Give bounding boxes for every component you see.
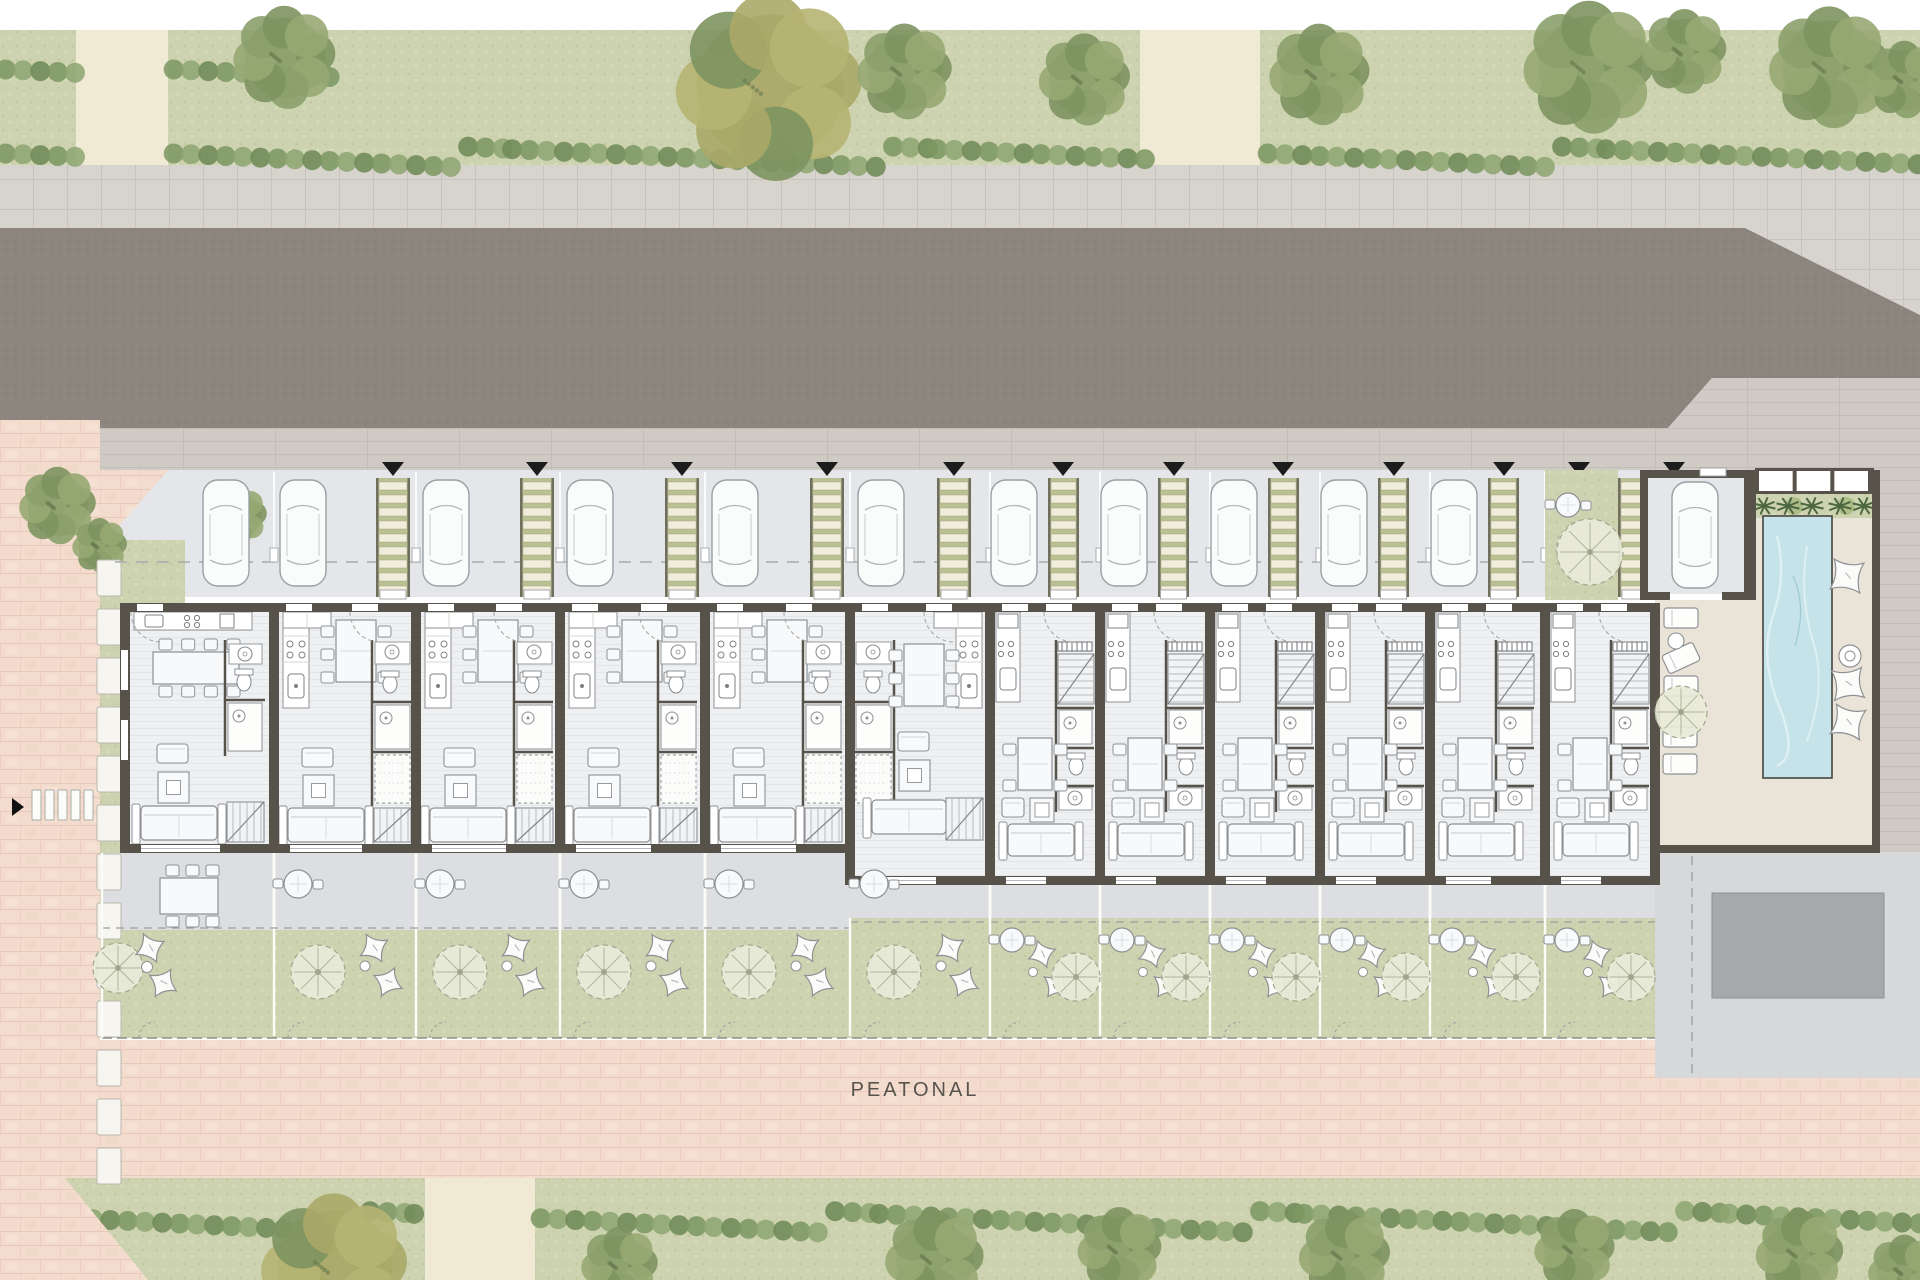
stepping-stone xyxy=(97,560,121,596)
east-sidewalk xyxy=(1880,378,1920,852)
stepping-stone xyxy=(97,707,121,743)
stepping-stone xyxy=(97,1099,121,1135)
tree xyxy=(1039,33,1130,125)
stepping-stone xyxy=(97,1050,121,1086)
stepping-stone xyxy=(97,756,121,792)
crosswalk-slat xyxy=(84,790,93,820)
entry-walkway xyxy=(810,478,844,597)
south-paths xyxy=(425,1178,535,1280)
ramp xyxy=(1712,893,1884,998)
north-sidewalk xyxy=(0,165,1920,228)
unit-7 xyxy=(995,612,1095,876)
garden-tree xyxy=(1272,953,1320,1001)
garden-tree xyxy=(722,945,776,999)
unit-1 xyxy=(130,612,269,844)
sun-lounger xyxy=(1664,608,1698,628)
tree xyxy=(233,6,335,109)
lounger-kite xyxy=(1832,668,1865,701)
entry-walkway xyxy=(1158,478,1189,597)
garden-tree xyxy=(1382,953,1430,1001)
crosswalk-slat xyxy=(58,790,67,820)
car xyxy=(203,480,249,586)
ring-table xyxy=(1839,645,1861,667)
garden-tree xyxy=(1655,686,1707,738)
garden-tree xyxy=(1162,953,1210,1001)
lounger-kite xyxy=(1830,559,1864,593)
garden-tree xyxy=(867,945,921,999)
car xyxy=(423,480,469,586)
carport xyxy=(1640,468,1752,600)
unit-11 xyxy=(1435,612,1540,876)
street-label: PEATONAL xyxy=(851,1079,980,1101)
tree xyxy=(1643,9,1727,94)
garden-tree xyxy=(1492,953,1540,1001)
unit-12 xyxy=(1550,612,1650,876)
unit-9 xyxy=(1215,612,1315,876)
car xyxy=(712,480,758,586)
stepping-stone xyxy=(97,658,121,694)
unit-6 xyxy=(855,612,985,876)
car xyxy=(1431,480,1477,586)
stepping-stone xyxy=(97,1001,121,1037)
tree xyxy=(1269,24,1369,125)
unit-4 xyxy=(565,612,700,846)
stepping-stone xyxy=(97,854,121,890)
garden-tree xyxy=(291,945,345,999)
garden-tree xyxy=(433,945,487,999)
garden-tree xyxy=(1557,519,1623,585)
tree xyxy=(1769,6,1889,128)
entry-walkway xyxy=(1268,478,1299,597)
entry-walkway xyxy=(937,478,971,597)
unit-10 xyxy=(1325,612,1425,876)
stepping-stone xyxy=(97,903,121,939)
entry-walkway xyxy=(665,478,699,597)
garden-tree xyxy=(93,943,143,993)
road xyxy=(0,228,1920,428)
entry-walkway xyxy=(520,478,554,597)
unit-5 xyxy=(710,612,845,846)
car xyxy=(1672,482,1718,588)
terraces-row-b xyxy=(850,885,1655,918)
unit-8 xyxy=(1105,612,1205,876)
garden-tree xyxy=(1607,953,1655,1001)
car xyxy=(991,480,1037,586)
car xyxy=(858,480,904,586)
townhouse-units xyxy=(120,603,1660,885)
sun-lounger xyxy=(1663,754,1697,774)
unit-3 xyxy=(421,612,555,846)
tree xyxy=(1524,1,1655,134)
entry-walkway xyxy=(376,478,410,597)
car xyxy=(1211,480,1257,586)
unit-2 xyxy=(279,612,411,846)
garden-tree xyxy=(577,945,631,999)
car xyxy=(1101,480,1147,586)
garden-tree xyxy=(1052,953,1100,1001)
pool-planting xyxy=(1753,494,1876,518)
crosswalk-slat xyxy=(32,790,41,820)
pergola xyxy=(1755,468,1874,494)
tree xyxy=(857,23,952,119)
site-plan-drawing: PEATONAL xyxy=(0,0,1920,1280)
stepping-stone xyxy=(97,805,121,841)
car xyxy=(280,480,326,586)
side-table xyxy=(1668,633,1684,649)
entry-walkway xyxy=(1488,478,1519,597)
stepping-stone xyxy=(97,1148,121,1184)
stepping-stone xyxy=(97,609,121,645)
entry-walkway xyxy=(1048,478,1079,597)
car xyxy=(1321,480,1367,586)
entry-walkway xyxy=(1378,478,1409,597)
swimming-pool xyxy=(1763,516,1832,778)
car xyxy=(567,480,613,586)
site-plan: PEATONAL xyxy=(0,0,1920,1280)
crosswalk-slat xyxy=(71,790,80,820)
crosswalk-slat xyxy=(45,790,54,820)
